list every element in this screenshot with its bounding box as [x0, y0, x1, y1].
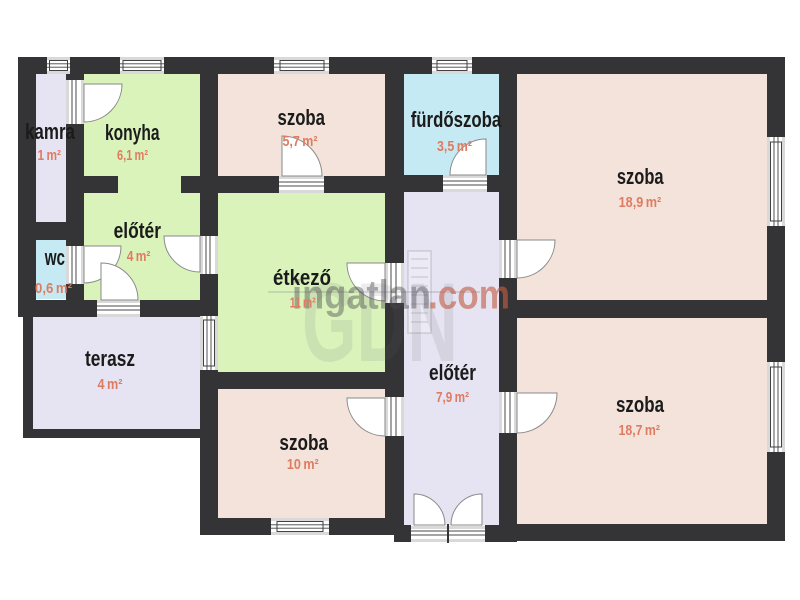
svg-text:11 m²: 11 m²: [290, 296, 316, 312]
svg-text:7,9 m²: 7,9 m²: [436, 390, 469, 406]
svg-text:18,7 m²: 18,7 m²: [619, 423, 661, 439]
svg-text:3,5 m²: 3,5 m²: [437, 139, 472, 155]
svg-text:4 m²: 4 m²: [127, 249, 151, 265]
svg-text:wc: wc: [44, 245, 65, 270]
svg-text:konyha: konyha: [105, 120, 160, 145]
svg-text:szoba: szoba: [278, 105, 326, 130]
svg-text:0,6 m²: 0,6 m²: [35, 281, 72, 297]
svg-text:kamra: kamra: [25, 119, 76, 144]
svg-text:előtér: előtér: [429, 360, 476, 385]
svg-text:szoba: szoba: [279, 430, 328, 455]
svg-text:.com: .com: [428, 272, 510, 318]
svg-text:18,9 m²: 18,9 m²: [619, 195, 662, 211]
svg-text:szoba: szoba: [617, 164, 664, 189]
svg-text:előtér: előtér: [114, 218, 162, 243]
svg-text:10 m²: 10 m²: [287, 457, 319, 473]
svg-text:étkező: étkező: [273, 265, 331, 290]
svg-text:4 m²: 4 m²: [98, 377, 123, 393]
svg-text:fürdőszoba: fürdőszoba: [411, 107, 502, 132]
svg-text:6,1 m²: 6,1 m²: [117, 148, 148, 164]
svg-text:1 m²: 1 m²: [38, 148, 62, 164]
svg-text:szoba: szoba: [616, 392, 665, 417]
svg-text:terasz: terasz: [85, 346, 135, 371]
svg-text:5,7 m²: 5,7 m²: [283, 134, 318, 150]
